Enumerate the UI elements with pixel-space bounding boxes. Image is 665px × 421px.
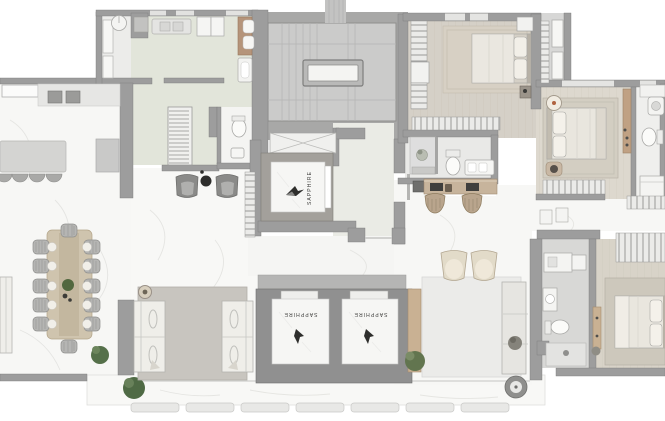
svg-text:SAPPHIRE: SAPPHIRE xyxy=(283,311,317,317)
svg-text:SAPPHIRE: SAPPHIRE xyxy=(307,171,313,205)
svg-text:SAPPHIRE: SAPPHIRE xyxy=(353,311,387,317)
